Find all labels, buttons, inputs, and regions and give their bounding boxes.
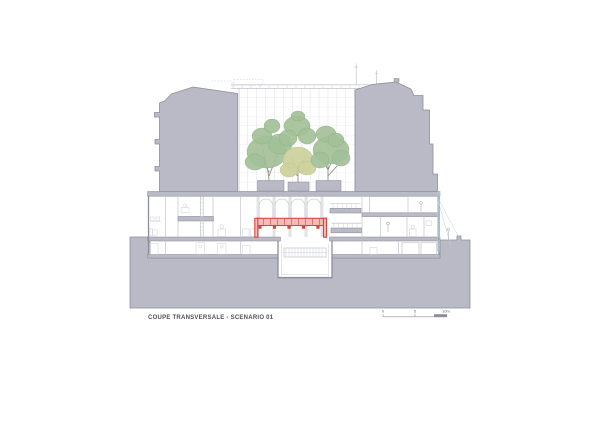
scale-label-5: 5 [414, 308, 417, 313]
scale-label-0: 0 [382, 308, 385, 313]
toilet-fixture-right [410, 221, 432, 237]
drawing-title: COUPE TRANSVERSALE - SCENARIO 01 [148, 315, 274, 321]
atrium-floor-slab [148, 192, 441, 197]
mezzanine-right-lower [331, 223, 362, 233]
planter-3 [316, 181, 341, 192]
right-interior [362, 196, 439, 255]
mezzanine-slab-left [178, 216, 214, 221]
atrium-roof [212, 80, 375, 89]
left-interior [150, 196, 257, 255]
scale-bar-block [434, 314, 447, 317]
drawing-page: COUPE TRANSVERSALE - SCENARIO 01 0 5 10m [0, 0, 600, 424]
ladder [200, 197, 203, 237]
scale-bar: 0 5 10m [382, 308, 451, 317]
left-building-mass [155, 87, 238, 192]
right-building-mass [355, 79, 438, 192]
ground-floor-slab [148, 237, 441, 241]
antenna [354, 64, 378, 85]
scale-label-10m: 10m [442, 308, 450, 313]
basement-floor-slab [148, 255, 441, 259]
desk-fixture [181, 204, 189, 213]
right-floor-slab [362, 213, 439, 217]
upper-room-box [370, 197, 409, 213]
wc-fixture [218, 225, 226, 237]
basement-right [370, 241, 437, 255]
basement-fixtures-left [150, 243, 251, 255]
basement-pit [278, 241, 332, 278]
chimney [394, 79, 399, 83]
planter-1 [258, 181, 285, 192]
toilet-fixture [150, 217, 161, 236]
section-drawing: COUPE TRANSVERSALE - SCENARIO 01 0 5 10m [0, 0, 600, 424]
planter-2 [288, 182, 309, 191]
arcade-arches [257, 196, 323, 237]
mezzanine-right-upper [330, 204, 361, 214]
